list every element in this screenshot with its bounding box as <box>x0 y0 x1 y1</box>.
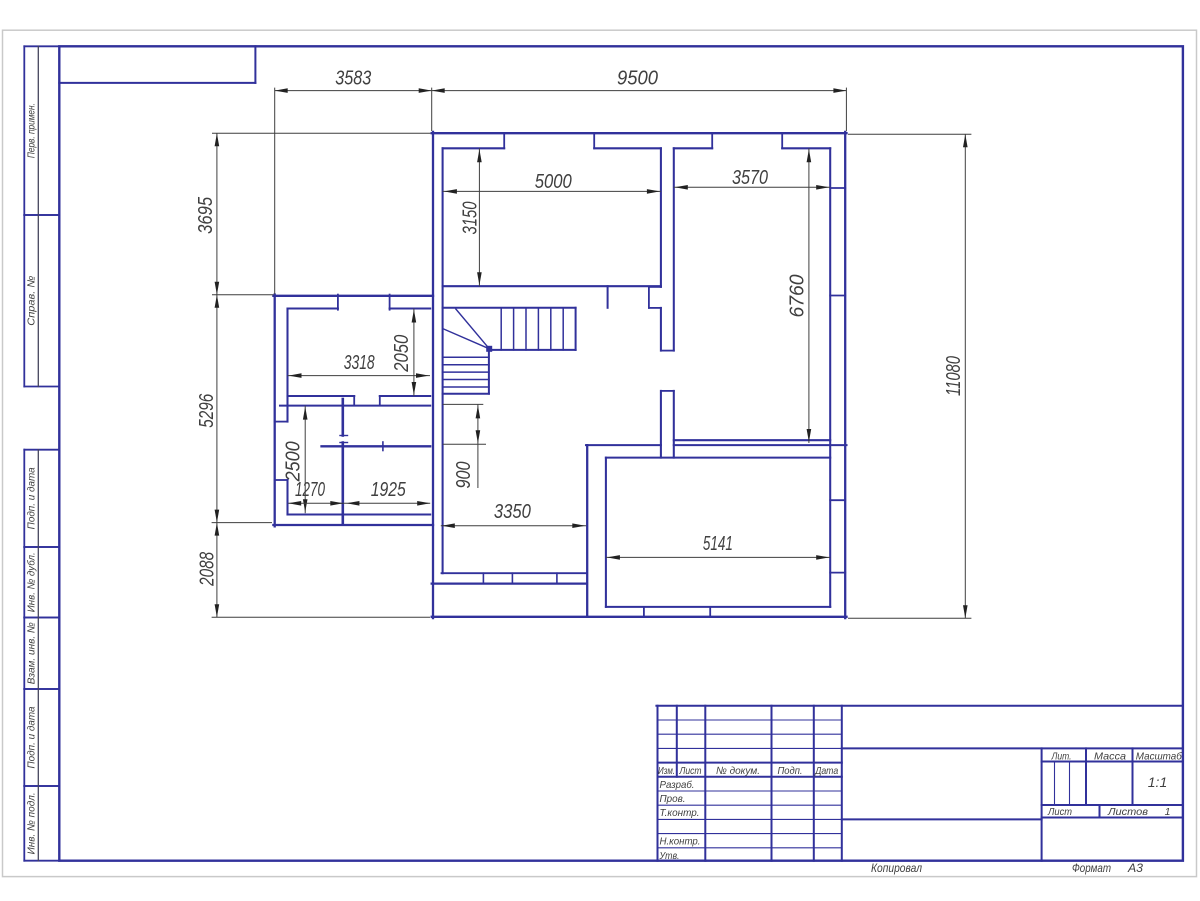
svg-text:2050: 2050 <box>391 335 413 373</box>
svg-text:А3: А3 <box>1127 861 1143 875</box>
svg-text:Копировал: Копировал <box>871 861 922 875</box>
svg-text:Подп.: Подп. <box>778 765 803 777</box>
svg-text:Лист: Лист <box>679 765 702 777</box>
svg-text:1925: 1925 <box>371 479 407 501</box>
svg-text:5000: 5000 <box>535 171 572 193</box>
svg-text:Дата: Дата <box>814 765 838 777</box>
svg-text:2500: 2500 <box>283 441 305 482</box>
svg-text:Инв. № дубл.: Инв. № дубл. <box>26 552 38 612</box>
svg-text:Листов: Листов <box>1107 806 1149 818</box>
svg-text:Разраб.: Разраб. <box>660 779 695 791</box>
svg-text:Перв. примен.: Перв. примен. <box>26 103 38 158</box>
svg-text:Масштаб: Масштаб <box>1136 750 1183 762</box>
svg-text:1:1: 1:1 <box>1148 774 1167 790</box>
svg-text:3583: 3583 <box>335 68 371 90</box>
svg-text:Взам. инв. №: Взам. инв. № <box>26 622 38 684</box>
svg-text:Т.контр.: Т.контр. <box>660 807 700 819</box>
svg-text:11080: 11080 <box>943 356 965 396</box>
svg-text:Формат: Формат <box>1072 861 1111 875</box>
svg-text:6760: 6760 <box>787 275 809 318</box>
svg-text:Подп. и дата: Подп. и дата <box>26 467 38 529</box>
svg-text:3570: 3570 <box>732 167 768 189</box>
svg-text:3318: 3318 <box>344 352 375 374</box>
svg-text:Утв.: Утв. <box>659 850 680 862</box>
svg-text:Инв. № подл.: Инв. № подл. <box>26 792 38 854</box>
svg-text:Справ. №: Справ. № <box>26 276 38 326</box>
svg-text:Подп. и дата: Подп. и дата <box>26 706 38 768</box>
svg-text:2088: 2088 <box>197 552 219 587</box>
svg-text:Н.контр.: Н.контр. <box>660 836 701 848</box>
svg-text:5296: 5296 <box>196 393 218 428</box>
svg-text:3150: 3150 <box>460 202 482 235</box>
svg-text:Масса: Масса <box>1094 750 1126 762</box>
svg-text:1: 1 <box>1165 806 1171 818</box>
svg-text:Пров.: Пров. <box>660 793 686 805</box>
svg-text:1270: 1270 <box>295 479 325 501</box>
svg-text:3695: 3695 <box>195 196 217 234</box>
svg-text:3350: 3350 <box>494 501 531 523</box>
svg-text:900: 900 <box>453 462 475 489</box>
svg-text:Лист: Лист <box>1047 806 1072 818</box>
svg-text:5141: 5141 <box>703 533 733 555</box>
svg-text:Изм.: Изм. <box>658 765 675 777</box>
svg-text:9500: 9500 <box>617 68 658 90</box>
svg-text:Лит.: Лит. <box>1051 750 1072 762</box>
svg-text:№ докум.: № докум. <box>716 765 760 777</box>
